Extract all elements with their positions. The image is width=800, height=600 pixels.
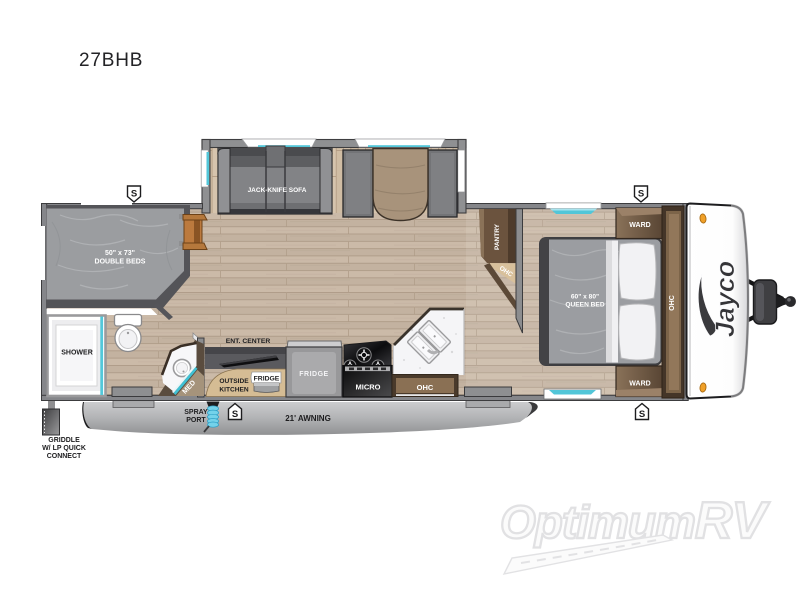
svg-text:FRIDGE: FRIDGE — [299, 371, 328, 378]
svg-text:S: S — [638, 189, 644, 200]
svg-text:60" x 80": 60" x 80" — [571, 294, 599, 301]
svg-text:QUEEN BED: QUEEN BED — [565, 302, 604, 309]
svg-text:SPRAY: SPRAY — [184, 409, 208, 416]
svg-text:MICRO: MICRO — [356, 383, 381, 392]
svg-text:CONNECT: CONNECT — [47, 453, 82, 460]
svg-text:OHC: OHC — [417, 383, 434, 392]
svg-text:S: S — [639, 409, 645, 420]
svg-text:S: S — [232, 409, 238, 420]
svg-text:27BHB: 27BHB — [79, 50, 143, 71]
svg-text:Jayco: Jayco — [710, 261, 740, 338]
svg-text:WARD: WARD — [629, 222, 650, 229]
svg-text:GRIDDLE: GRIDDLE — [48, 437, 80, 444]
svg-text:OHC: OHC — [669, 295, 676, 311]
svg-text:PANTRY: PANTRY — [494, 223, 501, 250]
svg-text:JACK-KNIFE SOFA: JACK-KNIFE SOFA — [248, 187, 307, 194]
svg-text:S: S — [131, 189, 137, 200]
svg-text:PORT: PORT — [186, 417, 206, 424]
svg-text:DOUBLE BEDS: DOUBLE BEDS — [95, 259, 146, 266]
svg-text:FRIDGE: FRIDGE — [254, 376, 280, 383]
svg-text:50" x 73": 50" x 73" — [105, 250, 135, 257]
svg-text:SHOWER: SHOWER — [61, 350, 93, 357]
svg-text:KITCHEN: KITCHEN — [219, 387, 249, 394]
svg-text:21' AWNING: 21' AWNING — [285, 414, 331, 423]
svg-text:OUTSIDE: OUTSIDE — [219, 378, 249, 385]
svg-text:ENT. CENTER: ENT. CENTER — [226, 338, 271, 345]
svg-text:WARD: WARD — [629, 381, 650, 388]
svg-text:W/ LP QUICK: W/ LP QUICK — [42, 445, 86, 452]
